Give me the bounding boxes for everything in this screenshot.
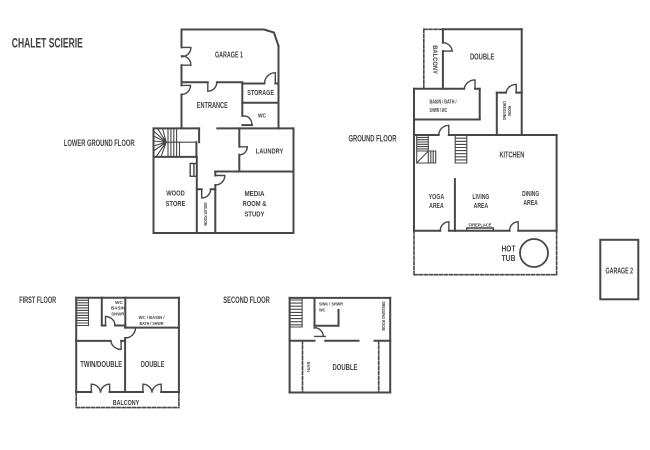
svg-text:BALCONY: BALCONY xyxy=(113,400,140,407)
svg-text:BASIN: BASIN xyxy=(111,306,125,311)
svg-text:ENTRANCE: ENTRANCE xyxy=(197,101,228,110)
svg-text:FIRST FLOOR: FIRST FLOOR xyxy=(19,295,56,305)
svg-text:BALCONY: BALCONY xyxy=(431,45,438,74)
svg-text:MEDIA: MEDIA xyxy=(245,189,265,198)
svg-text:BOILER ROOM: BOILER ROOM xyxy=(203,203,208,226)
svg-text:DRESSING: DRESSING xyxy=(502,101,507,121)
svg-text:ROOM &: ROOM & xyxy=(243,199,267,208)
svg-text:DOUBLE: DOUBLE xyxy=(141,360,165,369)
svg-text:AREA: AREA xyxy=(429,203,444,210)
svg-text:LIVING: LIVING xyxy=(472,194,489,201)
svg-text:HOT: HOT xyxy=(502,244,516,253)
svg-text:STORE: STORE xyxy=(166,199,186,208)
svg-text:WC / BASIN /: WC / BASIN / xyxy=(139,315,166,320)
svg-text:SHWR / WC: SHWR / WC xyxy=(430,108,448,114)
svg-text:BASIN / BATH /: BASIN / BATH / xyxy=(430,100,457,106)
svg-text:AREA: AREA xyxy=(523,200,538,207)
svg-text:WC: WC xyxy=(258,113,266,119)
svg-text:DOUBLE: DOUBLE xyxy=(470,53,495,62)
svg-text:DINING: DINING xyxy=(522,191,539,198)
svg-text:WC: WC xyxy=(115,300,123,305)
svg-text:GARAGE 1: GARAGE 1 xyxy=(215,51,243,60)
svg-text:DRESSING ROOM: DRESSING ROOM xyxy=(381,302,386,331)
svg-text:TWIN/DOUBLE: TWIN/DOUBLE xyxy=(80,360,122,369)
svg-text:LOWER GROUND FLOOR: LOWER GROUND FLOOR xyxy=(64,138,135,148)
svg-text:BATH: BATH xyxy=(306,362,311,372)
svg-text:GROUND FLOOR: GROUND FLOOR xyxy=(349,134,397,144)
svg-text:SINK / SHWR: SINK / SHWR xyxy=(319,302,343,308)
svg-text:ROOM: ROOM xyxy=(507,106,512,116)
svg-text:CHALET SCIERIE: CHALET SCIERIE xyxy=(12,36,83,51)
svg-text:WOOD: WOOD xyxy=(166,189,185,198)
svg-text:TUB: TUB xyxy=(502,254,516,263)
svg-text:GARAGE 2: GARAGE 2 xyxy=(606,267,634,276)
svg-text:FIREPLACE: FIREPLACE xyxy=(469,223,492,228)
svg-text:STUDY: STUDY xyxy=(245,209,265,218)
svg-text:DOUBLE: DOUBLE xyxy=(333,363,358,372)
svg-text:SECOND FLOOR: SECOND FLOOR xyxy=(223,295,270,305)
svg-text:WC: WC xyxy=(319,307,326,313)
svg-text:SHWR: SHWR xyxy=(111,311,125,316)
svg-text:AREA: AREA xyxy=(474,203,489,210)
svg-text:BATH / SHWR: BATH / SHWR xyxy=(140,321,165,326)
svg-text:YOGA: YOGA xyxy=(429,194,445,201)
svg-text:STORAGE: STORAGE xyxy=(247,90,274,97)
svg-text:LAUNDRY: LAUNDRY xyxy=(256,147,284,156)
svg-text:KITCHEN: KITCHEN xyxy=(499,151,524,160)
